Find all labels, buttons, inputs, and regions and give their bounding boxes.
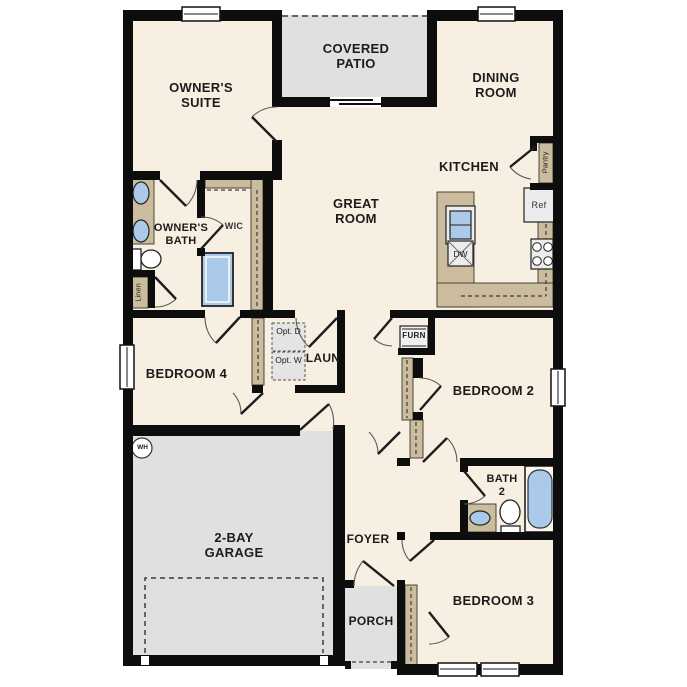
wall [391,661,397,669]
burner-icon [533,243,542,252]
room-label-kitchen: KITCHEN [430,159,508,174]
wall [148,277,155,308]
room-label-great-room: GREAT ROOM [319,196,393,227]
wall [133,171,160,180]
room-label-bedroom-3: BEDROOM 3 [446,593,541,608]
wall [427,10,437,107]
wall [413,412,423,420]
slider-opening [330,97,381,107]
room-label-garage: 2-BAY GARAGE [187,530,281,561]
wall [263,171,273,318]
wall [295,385,345,393]
burner-icon [544,243,553,252]
toilet-bowl [500,500,520,524]
wall [240,310,263,318]
bath-sink-icon [133,182,149,204]
garage-jamb [320,656,328,665]
wall [272,97,330,107]
room-label-laundry: LAUN [301,351,345,365]
wall [123,655,345,666]
wall [345,661,351,669]
toilet-bowl [141,250,161,268]
wall [460,458,553,466]
room-label-covered-patio: COVERED PATIO [314,41,398,72]
wall [381,97,437,107]
room-label-bedroom-2: BEDROOM 2 [446,383,541,398]
wall [345,580,354,588]
label-water-heater: WH [133,444,152,452]
room-label-dining-room: DINING ROOM [461,70,531,101]
wall [252,385,263,393]
label-optional-washer: Opt. W [273,355,304,365]
wall [428,318,435,350]
label-pantry: Pantry [542,142,551,182]
wall [460,500,468,532]
wall [530,183,553,190]
patio-slider [330,97,381,107]
wall [397,580,405,672]
wall [263,310,295,318]
burner-icon [544,257,553,266]
wall [197,248,205,256]
wall [553,10,563,675]
room-label-bath-2: BATH 2 [483,473,521,499]
label-linen: Linen [135,272,144,312]
wall [413,358,423,378]
floor-plan-geometry [0,0,687,687]
wall [390,310,553,318]
label-optional-dryer: Opt. D [273,326,304,336]
room-label-owners-suite: OWNER'S SUITE [155,80,247,111]
wall [272,10,282,107]
label-refrigerator: Ref [524,200,554,211]
bath2-sink-icon [470,511,490,525]
floor-plan: COVERED PATIO OWNER'S SUITE DINING ROOM … [0,0,687,687]
room-label-foyer: FOYER [343,532,393,546]
label-furnace: FURN [400,331,428,340]
wall [133,425,300,436]
label-dishwasher: DW [448,249,473,259]
wall [397,664,563,675]
room-label-porch: PORCH [346,614,396,628]
wall [430,532,553,540]
kitchen-counter-bottom [437,283,553,307]
wall [197,180,205,218]
wall [397,532,405,540]
burner-icon [533,257,542,266]
garage-jamb [141,656,149,665]
room-label-wic: WIC [219,221,249,232]
toilet-tank [132,249,141,270]
wall [133,310,205,318]
wall [123,10,133,666]
wall [398,348,435,355]
room-label-owners-bath: OWNER'S BATH [146,222,216,248]
room-label-bedroom-4: BEDROOM 4 [139,366,234,381]
wall [397,458,410,466]
bathtub [528,470,552,528]
